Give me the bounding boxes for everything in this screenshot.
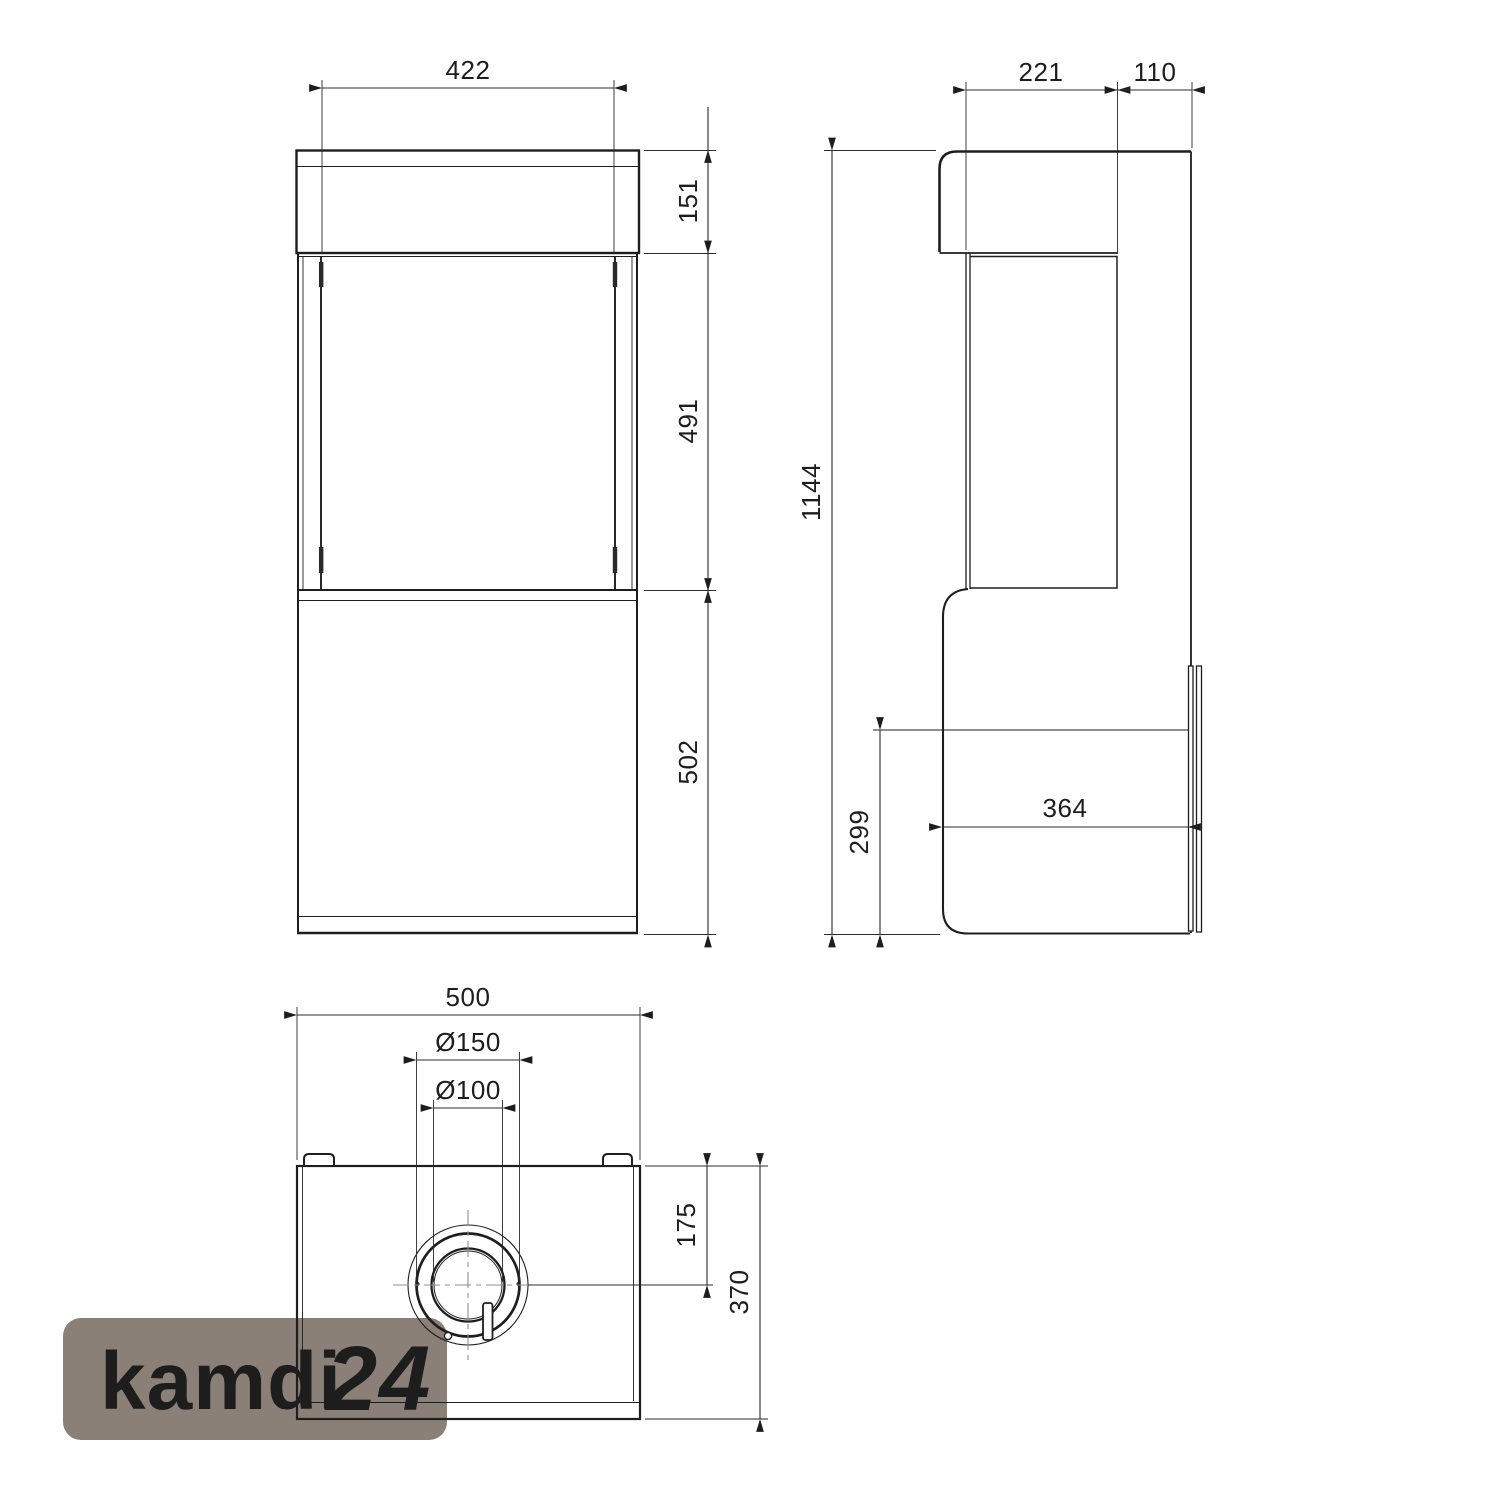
side-heat-shield-rear-plate [1197, 666, 1202, 932]
side-rear-offset-label: 110 [1134, 57, 1177, 87]
flue-bracket-tab [483, 1303, 493, 1340]
flue-lug-left [444, 1332, 451, 1339]
top-depth-label: 370 [724, 1270, 754, 1315]
side-total-height-label: 1144 [796, 463, 826, 521]
flue-offset-label: 175 [671, 1203, 701, 1248]
side-top-depth-label: 221 [1019, 57, 1064, 87]
watermark-suffix-text: 24 [324, 1328, 432, 1430]
watermark: kamdi 24 [63, 1318, 447, 1440]
front-glass-height-label: 491 [673, 399, 703, 444]
side-heat-shield-front-plate [1189, 666, 1194, 931]
front-width-label: 422 [446, 55, 491, 85]
front-cap-height-label: 151 [673, 179, 703, 224]
flue-outer-dia-label: Ø150 [435, 1027, 501, 1057]
technical-drawing: kamdi 24 422 151 491 502 [0, 0, 1500, 1500]
flue-inner-dia-label: Ø100 [435, 1075, 501, 1105]
side-base-height-label: 299 [844, 810, 874, 855]
top-width-label: 500 [446, 982, 491, 1012]
top-right-clip [603, 1154, 632, 1165]
side-base-depth-label: 364 [1043, 793, 1088, 823]
top-left-clip [304, 1154, 334, 1165]
watermark-brand-text: kamdi [100, 1336, 342, 1427]
front-base-height-label: 502 [673, 740, 703, 785]
stove-dimension-drawing-page: kamdi 24 422 151 491 502 [0, 0, 1500, 1500]
